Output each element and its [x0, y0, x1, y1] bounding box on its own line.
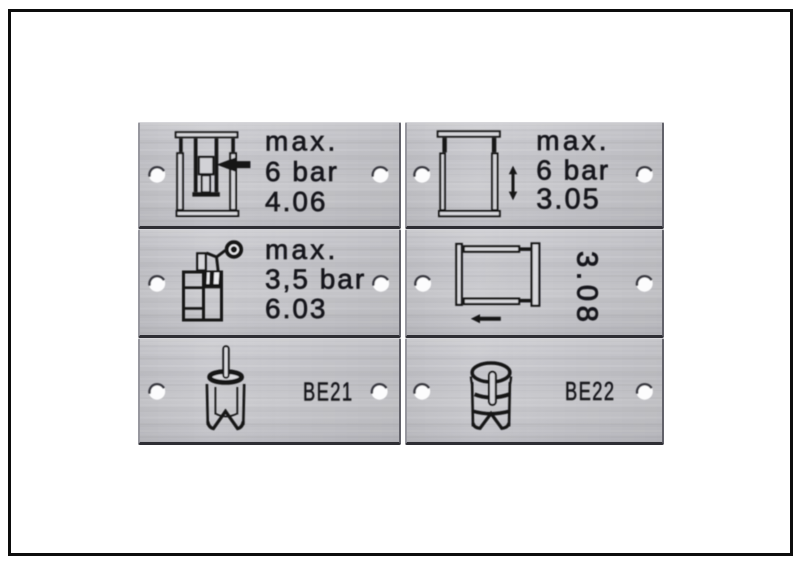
svg-text:6 bar: 6 bar: [536, 155, 610, 186]
svg-text:max.: max.: [265, 126, 338, 157]
svg-text:6.03: 6.03: [265, 293, 328, 324]
svg-text:BE21: BE21: [303, 379, 354, 407]
svg-text:BE22: BE22: [565, 378, 616, 406]
svg-text:3.08: 3.08: [571, 251, 603, 327]
svg-text:3.05: 3.05: [536, 184, 600, 216]
svg-text:4.06: 4.06: [265, 186, 328, 217]
svg-text:max.: max.: [536, 125, 609, 156]
svg-text:3,5 bar: 3,5 bar: [265, 264, 366, 295]
svg-text:max.: max.: [265, 234, 338, 265]
svg-text:6 bar: 6 bar: [265, 156, 339, 187]
